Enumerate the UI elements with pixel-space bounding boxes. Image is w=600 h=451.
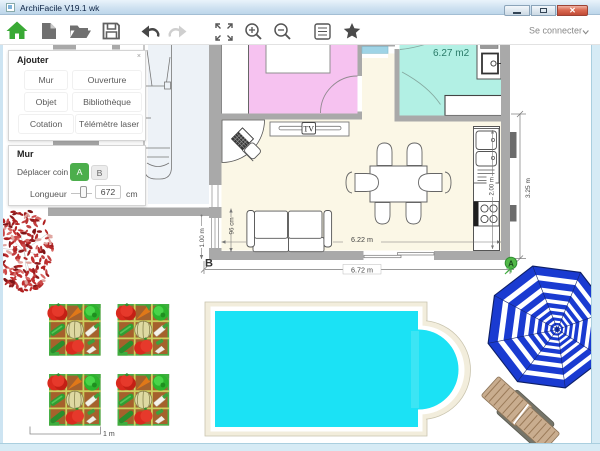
svg-text:B: B [205, 258, 213, 270]
svg-text:1.00 m: 1.00 m [199, 228, 206, 247]
svg-text:Se connecter: Se connecter [529, 26, 582, 36]
svg-text:TV: TV [303, 125, 314, 134]
svg-text:A: A [508, 260, 514, 269]
svg-text:6.72 m: 6.72 m [351, 266, 373, 275]
svg-text:96 cm: 96 cm [229, 217, 236, 234]
svg-text:6.27 m2: 6.27 m2 [433, 48, 470, 59]
svg-text:6.22 m: 6.22 m [351, 235, 373, 244]
svg-text:3.25 m: 3.25 m [525, 178, 532, 198]
svg-text:2.00 m: 2.00 m [490, 177, 496, 195]
svg-text:1 m: 1 m [103, 431, 115, 438]
